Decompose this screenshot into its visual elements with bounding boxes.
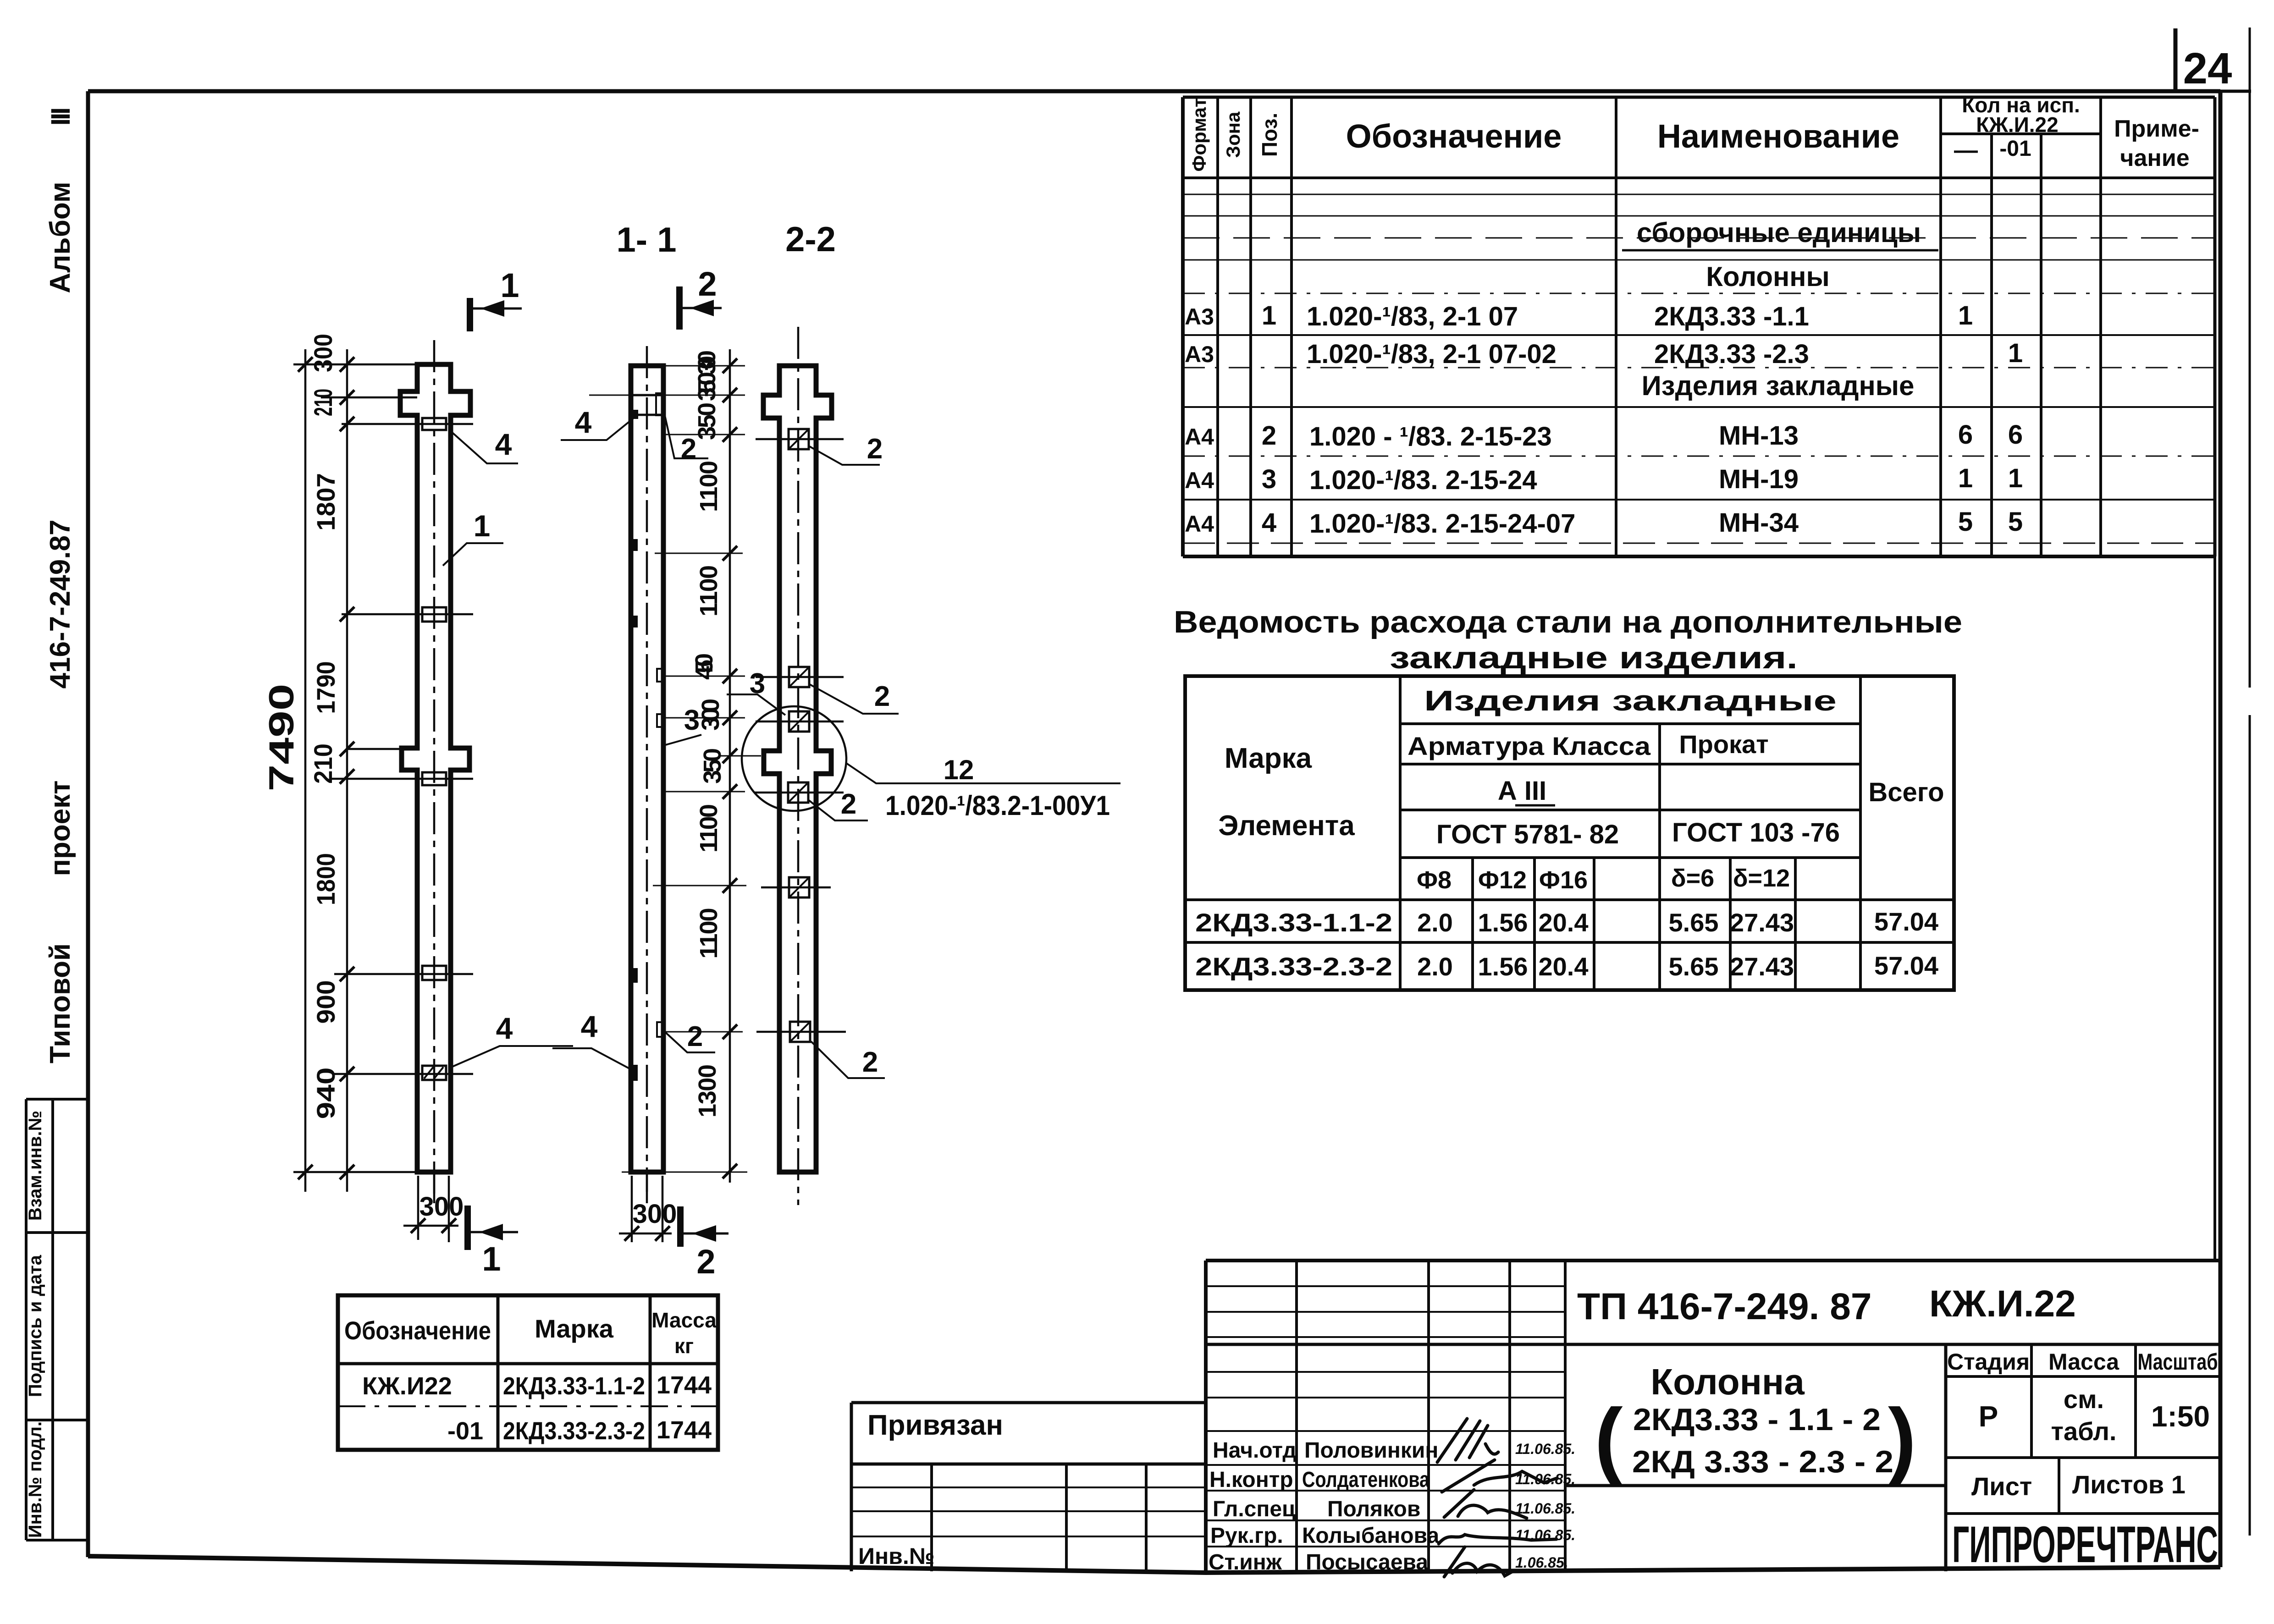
svg-text:1100: 1100 [695,804,723,853]
svg-text:Обозначение: Обозначение [344,1316,491,1345]
svg-text:А III: А III [1498,776,1546,806]
svg-text:Лист: Лист [1971,1472,2032,1501]
svg-text:Зона: Зона [1222,111,1244,158]
svg-text:Колонна: Колонна [1650,1361,1805,1402]
svg-text:МН-34: МН-34 [1719,508,1799,538]
svg-text:1: 1 [482,1240,501,1278]
svg-text:1.020 - ¹/83. 2-15-23: 1.020 - ¹/83. 2-15-23 [1309,422,1552,451]
svg-text:δ=12: δ=12 [1733,864,1790,892]
svg-text:проект: проект [44,780,76,876]
svg-text:Элемента: Элемента [1218,810,1355,842]
svg-text:Ф8: Ф8 [1417,866,1452,894]
svg-text:20.4: 20.4 [1539,908,1589,937]
svg-text:2-2: 2-2 [785,220,836,259]
svg-text:2КД3.33-2.3-2: 2КД3.33-2.3-2 [1195,952,1392,981]
svg-text:2.0: 2.0 [1417,908,1453,937]
svg-text:Марка: Марка [1225,743,1312,774]
svg-text:—: — [1954,137,1978,164]
svg-text:4: 4 [495,427,512,461]
svg-text:350: 350 [693,372,721,401]
svg-text:Гл.спец: Гл.спец [1213,1497,1296,1521]
svg-text:2КД3.33 -1.1: 2КД3.33 -1.1 [1654,302,1809,331]
svg-text:5.65: 5.65 [1669,952,1719,981]
svg-text:Взам.инв.№: Взам.инв.№ [25,1111,45,1221]
svg-text:940: 940 [311,1068,340,1119]
svg-text:Листов 1: Листов 1 [2072,1470,2186,1499]
svg-text:1:50: 1:50 [2151,1400,2210,1433]
svg-text:3: 3 [750,668,765,699]
svg-text:1744: 1744 [657,1371,712,1399]
svg-text:4: 4 [575,405,592,439]
svg-text:1: 1 [1262,301,1276,330]
svg-text:5.65: 5.65 [1669,908,1719,937]
svg-text:1.020-¹/83. 2-15-24-07: 1.020-¹/83. 2-15-24-07 [1309,509,1575,539]
svg-text:300: 300 [419,1192,464,1222]
svg-text:ТП 416-7-249. 87: ТП 416-7-249. 87 [1577,1286,1871,1327]
svg-text:1- 1: 1- 1 [617,220,677,259]
svg-text:2: 2 [696,1243,715,1281]
svg-text:1.020-¹/83. 2-15-24: 1.020-¹/83. 2-15-24 [1309,465,1537,495]
svg-text:1: 1 [2008,463,2023,493]
svg-text:2: 2 [687,1021,703,1052]
svg-text:27.43: 27.43 [1730,952,1794,981]
svg-text:1: 1 [1958,463,1973,493]
svg-text:Нач.отд: Нач.отд [1213,1438,1297,1463]
svg-text:300: 300 [697,699,724,731]
svg-text:210: 210 [309,389,337,416]
svg-text:Ведомость расхода стали на доп: Ведомость расхода стали на дополнительны… [1174,605,1962,639]
svg-text:1.020-¹/83, 2-1 07: 1.020-¹/83, 2-1 07 [1307,302,1518,331]
svg-text:(: ( [1595,1392,1623,1486]
svg-text:450: 450 [690,653,718,680]
svg-text:1744: 1744 [657,1416,712,1444]
svg-text:2: 2 [862,1046,878,1078]
svg-text:Ст.инж: Ст.инж [1209,1550,1282,1574]
svg-text:Стадия: Стадия [1947,1349,2030,1375]
svg-text:300: 300 [693,350,721,375]
svg-text:КЖ.И.22: КЖ.И.22 [1976,113,2058,137]
svg-text:ГИПРОРЕЧТРАНС: ГИПРОРЕЧТРАНС [1952,1516,2218,1573]
svg-text:300: 300 [633,1199,677,1229]
svg-text:Поляков: Поляков [1327,1497,1420,1521]
svg-text:Колыбанова: Колыбанова [1302,1524,1439,1548]
svg-text:416-7-249.87: 416-7-249.87 [44,520,76,689]
svg-text:Инв.№ подл.: Инв.№ подл. [25,1421,45,1538]
svg-text:1.56: 1.56 [1478,952,1528,981]
svg-text:7490: 7490 [262,684,301,792]
svg-text:Масса: Масса [2048,1349,2119,1375]
svg-text:Ф12: Ф12 [1478,866,1527,894]
svg-text:1.06.85.: 1.06.85. [1515,1554,1568,1571]
svg-text:А4: А4 [1185,511,1214,537]
svg-text:2КД3.33 -2.3: 2КД3.33 -2.3 [1654,339,1809,369]
svg-text:Поз.: Поз. [1258,113,1281,157]
svg-text:Привязан: Привязан [867,1409,1003,1441]
svg-text:Марка: Марка [535,1314,614,1343]
svg-text:2КД3.33-2.3-2: 2КД3.33-2.3-2 [503,1417,645,1445]
svg-text:Колонны: Колонны [1706,261,1829,292]
svg-text:Прокат: Прокат [1679,730,1768,759]
svg-text:Альбом: Альбом [44,182,76,293]
svg-text:1100: 1100 [695,461,723,512]
svg-text:57.04: 57.04 [1874,907,1938,936]
svg-text:ГОСТ 5781- 82: ГОСТ 5781- 82 [1436,820,1619,849]
svg-text:350: 350 [693,402,721,440]
svg-text:5: 5 [2008,507,2023,537]
svg-text:1300: 1300 [694,1064,721,1118]
svg-text:350: 350 [699,748,726,784]
svg-text:1.56: 1.56 [1478,908,1528,937]
svg-text:2: 2 [1262,421,1276,451]
svg-text:2: 2 [867,433,883,465]
svg-text:11.06.85.: 11.06.85. [1515,1527,1575,1543]
svg-text:Посысаева: Посысаева [1306,1550,1428,1574]
svg-text:Ф16: Ф16 [1539,866,1588,894]
svg-text:III: III [46,109,76,126]
svg-text:-01: -01 [1999,137,2031,161]
svg-text:МН-19: МН-19 [1719,464,1799,494]
svg-text:2.0: 2.0 [1417,952,1453,981]
svg-text:кг: кг [674,1334,694,1358]
svg-text:Изделия закладные: Изделия закладные [1642,370,1915,401]
svg-text:Всего: Всего [1868,777,1944,807]
svg-text:Изделия закладные: Изделия закладные [1424,685,1837,717]
svg-text:Арматура Класса: Арматура Класса [1407,732,1651,760]
svg-text:Инв.№: Инв.№ [858,1543,935,1569]
svg-text:Подпись и дата: Подпись и дата [25,1255,45,1397]
svg-text:закладные изделия.: закладные изделия. [1390,640,1798,675]
svg-text:1: 1 [2008,338,2023,368]
svg-text:Масштаб: Масштаб [2138,1349,2218,1375]
svg-text:4: 4 [496,1011,513,1045]
svg-text:Наименование: Наименование [1657,118,1899,155]
svg-text:КЖ.И.22: КЖ.И.22 [1929,1283,2076,1325]
svg-text:А3: А3 [1185,304,1214,330]
svg-text:-01: -01 [447,1417,483,1445]
svg-text:): ) [1888,1392,1916,1486]
svg-text:1.020-¹/83, 2-1 07-02: 1.020-¹/83, 2-1 07-02 [1307,339,1556,369]
svg-text:12: 12 [944,754,974,785]
svg-text:МН-13: МН-13 [1719,421,1799,451]
svg-text:1.020-¹/83.2-1-00У1: 1.020-¹/83.2-1-00У1 [885,790,1110,821]
svg-text:Масса: Масса [651,1308,717,1332]
svg-text:1807: 1807 [311,473,340,531]
svg-text:20.4: 20.4 [1539,952,1589,981]
svg-text:4: 4 [1262,508,1276,538]
svg-text:4: 4 [581,1009,598,1043]
svg-text:δ=6: δ=6 [1671,864,1714,892]
svg-text:ГОСТ 103 -76: ГОСТ 103 -76 [1672,818,1840,848]
svg-text:1: 1 [500,266,519,304]
svg-text:2: 2 [874,681,890,712]
svg-text:1100: 1100 [695,908,723,959]
svg-text:1100: 1100 [695,565,723,617]
svg-text:1: 1 [474,509,491,543]
svg-text:11.06.85.: 11.06.85. [1515,1441,1575,1457]
svg-text:3: 3 [1262,464,1276,494]
svg-text:11.06.85.: 11.06.85. [1515,1500,1575,1517]
svg-text:Р: Р [1979,1400,1998,1433]
svg-text:24: 24 [2183,44,2232,93]
svg-text:27.43: 27.43 [1730,908,1794,937]
svg-text:Половинкин: Половинкин [1304,1438,1438,1463]
svg-text:А4: А4 [1185,424,1214,450]
svg-text:КЖ.И22: КЖ.И22 [362,1372,452,1400]
svg-text:чание: чание [2120,145,2189,171]
svg-text:5: 5 [1958,507,1973,537]
svg-text:1: 1 [1958,301,1973,330]
svg-text:А4: А4 [1185,468,1214,493]
svg-text:Рук.гр.: Рук.гр. [1210,1524,1283,1548]
svg-text:210: 210 [309,743,337,784]
svg-text:2КД3.33 - 1.1 - 2: 2КД3.33 - 1.1 - 2 [1633,1402,1881,1437]
svg-text:табл.: табл. [2051,1417,2117,1446]
svg-text:57.04: 57.04 [1874,951,1938,980]
svg-text:Типовой: Типовой [44,943,76,1063]
svg-text:Приме-: Приме- [2114,116,2199,142]
svg-text:сборочные единицы: сборочные единицы [1637,217,1921,248]
svg-text:Формат: Формат [1188,98,1210,171]
svg-text:6: 6 [2008,420,2023,450]
svg-text:300: 300 [309,334,337,372]
svg-text:2КД 3.33 - 2.3 - 2: 2КД 3.33 - 2.3 - 2 [1632,1444,1893,1479]
svg-text:Н.контр: Н.контр [1209,1468,1293,1492]
svg-text:А3: А3 [1185,341,1214,367]
svg-text:Обозначение: Обозначение [1346,118,1562,155]
svg-text:2: 2 [698,265,717,303]
svg-text:900: 900 [311,980,340,1024]
svg-text:6: 6 [1958,420,1973,450]
svg-text:2КД3.33-1.1-2: 2КД3.33-1.1-2 [503,1372,645,1400]
svg-text:см.: см. [2064,1385,2104,1414]
svg-text:Солдатенкова: Солдатенкова [1302,1468,1430,1492]
svg-text:1800: 1800 [311,853,340,905]
svg-text:1790: 1790 [311,661,340,714]
svg-text:2: 2 [841,788,856,820]
svg-text:2КД3.33-1.1-2: 2КД3.33-1.1-2 [1195,908,1392,937]
